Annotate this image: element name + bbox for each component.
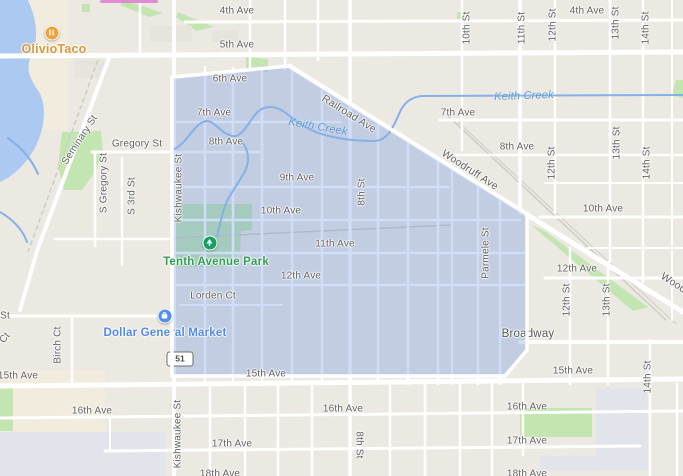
label-keith-creek: Keith Creek (494, 89, 554, 103)
label-ct: Ct (0, 330, 13, 345)
label-4th-ave: 4th Ave (570, 6, 605, 17)
restaurant-icon[interactable] (45, 26, 60, 41)
label-dollar-general-market[interactable]: Dollar General Market (103, 327, 226, 339)
label-17th-ave: 17th Ave (212, 439, 252, 450)
label-14th-st: 14th St (642, 146, 653, 179)
label-8th-st: 8th St (357, 178, 368, 205)
label-kishwaukee-st: Kishwaukee St (173, 400, 184, 469)
keith-creek (172, 95, 683, 150)
route-shield: 51 (167, 352, 194, 367)
label-lorden-ct: Lorden Ct (190, 291, 236, 302)
label-8th-st: 8th St (354, 431, 365, 458)
label-12th-ave: 12th Ave (557, 264, 597, 275)
label-12th-st: 12th St (562, 283, 573, 316)
label-kishwaukee-st: Kishwaukee St (174, 154, 185, 223)
label-keith-creek: Keith Creek (288, 116, 349, 138)
label-7th-ave: 7th Ave (441, 108, 476, 119)
label-15th-ave: 15th Ave (0, 371, 38, 382)
label-broadway: Broadway (502, 328, 555, 340)
label-11th-st: 11th St (517, 12, 528, 44)
selected-region (172, 66, 527, 376)
label-15th-ave: 15th Ave (553, 366, 593, 377)
park-tree-icon[interactable] (203, 236, 218, 251)
label-seminary-st: Seminary St (60, 113, 100, 167)
label-s-3rd-st: S 3rd St (127, 177, 138, 215)
label-woodruff-ave: Woodruff Ave (659, 270, 683, 315)
label-15th-ave: 15th Ave (246, 369, 286, 380)
label-12th-ave: 12th Ave (281, 271, 321, 282)
label-s-gregory-st: S Gregory St (99, 153, 110, 213)
selected-region-outline (0, 0, 683, 476)
label-11th-ave: 11th Ave (315, 239, 355, 250)
label-9th-ave: 9th Ave (280, 173, 315, 184)
label-railroad-ave: Railroad Ave (320, 93, 379, 136)
label-10th-ave: 10th Ave (583, 204, 623, 215)
label-5th-ave: 5th Ave (220, 40, 255, 51)
river (0, 0, 44, 182)
truncated-poi-label (100, 0, 158, 3)
label-12th-st: 12th St (548, 8, 559, 41)
label-birch-ct: Birch Ct (53, 326, 64, 363)
label-10th-ave: 10th Ave (261, 206, 301, 217)
label-woodruff-ave: Woodruff Ave (440, 147, 501, 192)
label-16th-ave: 16th Ave (72, 406, 112, 417)
label-12th-st: 12th St (547, 146, 558, 179)
label-13th-st: 13th St (612, 126, 623, 159)
label-13th-st: 13th St (602, 283, 613, 316)
label-14th-st: 14th St (643, 360, 654, 393)
label-14th-st: 14th St (641, 11, 652, 44)
label-oliviotaco[interactable]: OlivioTaco (22, 42, 87, 56)
map-base-art (0, 0, 683, 476)
label-7th-ave: 7th Ave (197, 108, 232, 119)
label-gregory-st: Gregory St (112, 139, 162, 150)
map-canvas[interactable]: 51 BroadwayDollar General Market 4th Ave… (0, 0, 683, 476)
label-layer: 4th Ave4th Ave5th Ave6th Ave7th Ave7th A… (0, 0, 683, 476)
under-label-layer: 51 BroadwayDollar General Market (0, 0, 683, 476)
label-10th-st: 10th St (462, 11, 473, 44)
label-18th-ave: 18th Ave (200, 469, 240, 476)
label-17th-ave: 17th Ave (507, 436, 547, 447)
label-4th-ave: 4th Ave (220, 6, 255, 17)
label-tenth-avenue-park[interactable]: Tenth Avenue Park (163, 256, 269, 268)
label-13th-st: 13th St (611, 6, 622, 39)
park-area (58, 131, 103, 190)
label-st: St (0, 311, 10, 322)
label-6th-ave: 6th Ave (213, 74, 248, 85)
label-8th-ave: 8th Ave (209, 137, 244, 148)
label-parmele-st: Parmele St (481, 227, 492, 278)
tenth-avenue-park-area (176, 204, 252, 267)
label-18th-ave: 18th Ave (507, 469, 547, 476)
label-16th-ave: 16th Ave (507, 402, 547, 413)
label-16th-ave: 16th Ave (323, 404, 363, 415)
label-8th-ave: 8th Ave (500, 142, 535, 153)
shopping-icon[interactable] (158, 309, 173, 324)
